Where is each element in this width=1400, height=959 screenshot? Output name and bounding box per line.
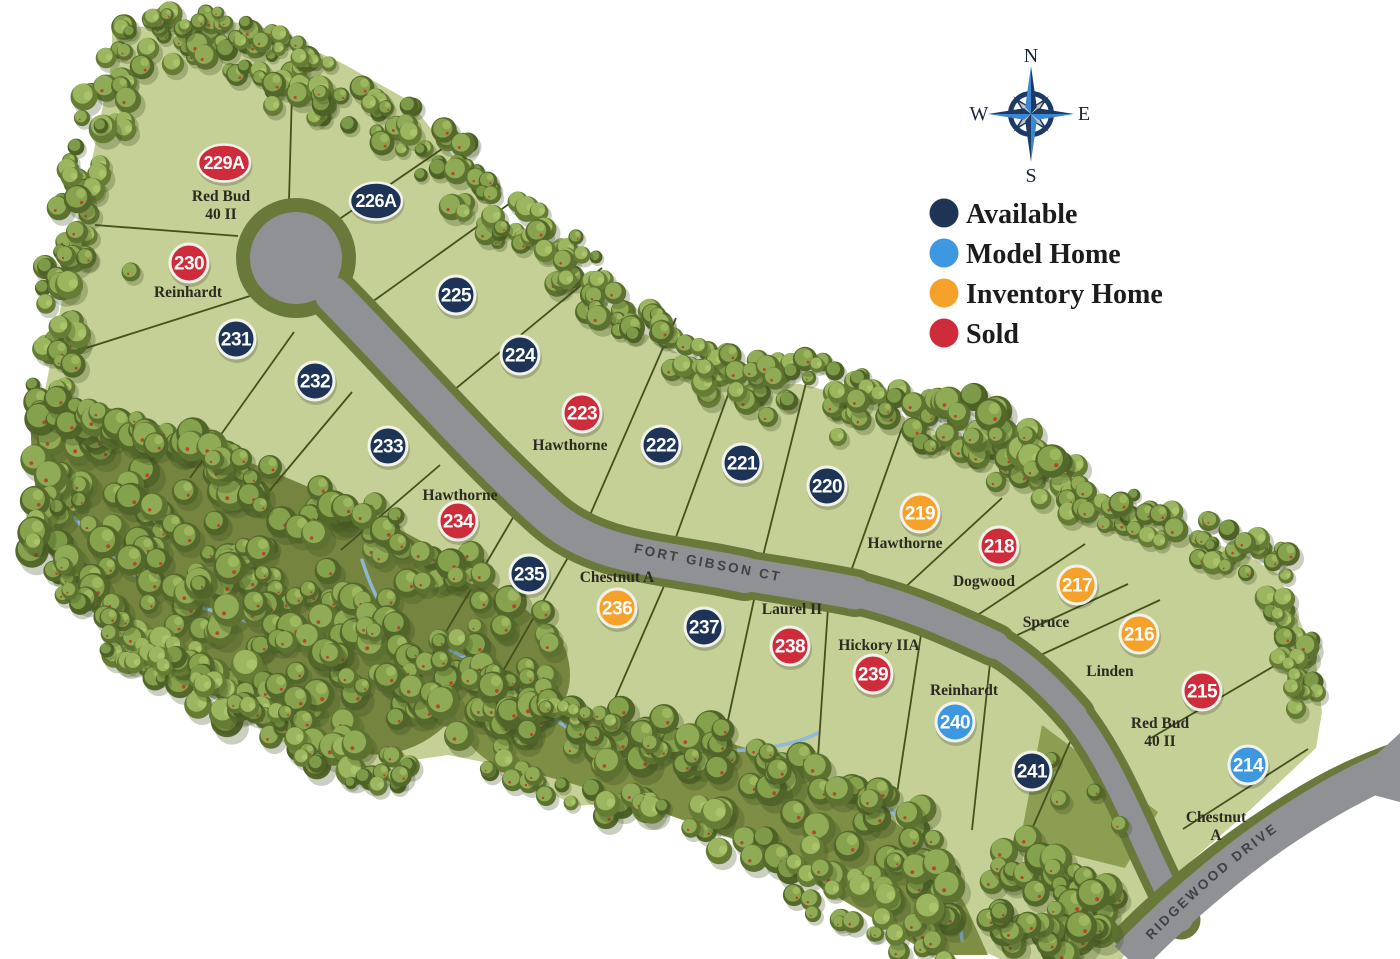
svg-text:40 II: 40 II	[1144, 733, 1175, 750]
svg-text:Linden: Linden	[1086, 663, 1134, 680]
svg-text:222: 222	[646, 436, 676, 457]
svg-text:214: 214	[1233, 756, 1264, 777]
svg-text:217: 217	[1062, 576, 1092, 597]
svg-text:224: 224	[505, 346, 536, 367]
svg-text:Reinhardt: Reinhardt	[930, 682, 999, 699]
svg-text:N: N	[1024, 45, 1038, 67]
svg-text:Sold: Sold	[966, 319, 1019, 350]
svg-text:Inventory Home: Inventory Home	[966, 279, 1163, 310]
svg-text:216: 216	[1124, 625, 1154, 646]
svg-text:236: 236	[602, 599, 632, 620]
svg-text:233: 233	[373, 437, 403, 458]
svg-text:220: 220	[812, 477, 842, 498]
svg-text:231: 231	[221, 330, 252, 351]
svg-text:221: 221	[727, 454, 758, 475]
svg-text:Hawthorne: Hawthorne	[868, 535, 943, 552]
svg-text:Dogwood: Dogwood	[953, 573, 1015, 590]
svg-text:Red Bud: Red Bud	[1131, 715, 1190, 732]
svg-text:Reinhardt: Reinhardt	[154, 284, 223, 301]
svg-text:Chestnut A: Chestnut A	[580, 569, 655, 586]
svg-text:E: E	[1078, 103, 1090, 125]
svg-text:239: 239	[858, 665, 888, 686]
svg-text:W: W	[970, 103, 989, 125]
svg-text:219: 219	[905, 504, 935, 525]
svg-text:223: 223	[567, 404, 597, 425]
svg-text:229A: 229A	[203, 153, 245, 173]
svg-text:Hawthorne: Hawthorne	[533, 437, 608, 454]
svg-text:Red Bud: Red Bud	[192, 188, 251, 205]
svg-text:Model Home: Model Home	[966, 239, 1121, 270]
svg-text:Hawthorne: Hawthorne	[423, 487, 498, 504]
svg-text:232: 232	[300, 372, 330, 393]
svg-text:Hickory IIA: Hickory IIA	[838, 637, 920, 654]
svg-text:Laurel II: Laurel II	[762, 601, 822, 618]
svg-text:Available: Available	[966, 199, 1077, 230]
svg-text:Chestnut: Chestnut	[1186, 809, 1247, 826]
svg-text:238: 238	[775, 637, 805, 658]
svg-text:218: 218	[984, 537, 1014, 558]
svg-text:241: 241	[1017, 762, 1048, 783]
svg-text:234: 234	[443, 512, 474, 533]
svg-text:226A: 226A	[355, 191, 397, 211]
svg-text:A: A	[1210, 827, 1222, 844]
svg-text:230: 230	[174, 254, 204, 275]
svg-text:40 II: 40 II	[205, 206, 236, 223]
svg-text:235: 235	[514, 565, 545, 586]
svg-text:237: 237	[689, 618, 719, 639]
svg-text:S: S	[1025, 165, 1036, 187]
svg-text:240: 240	[940, 713, 970, 734]
svg-text:225: 225	[441, 286, 472, 307]
svg-text:215: 215	[1187, 682, 1218, 703]
svg-text:Spruce: Spruce	[1023, 614, 1070, 631]
